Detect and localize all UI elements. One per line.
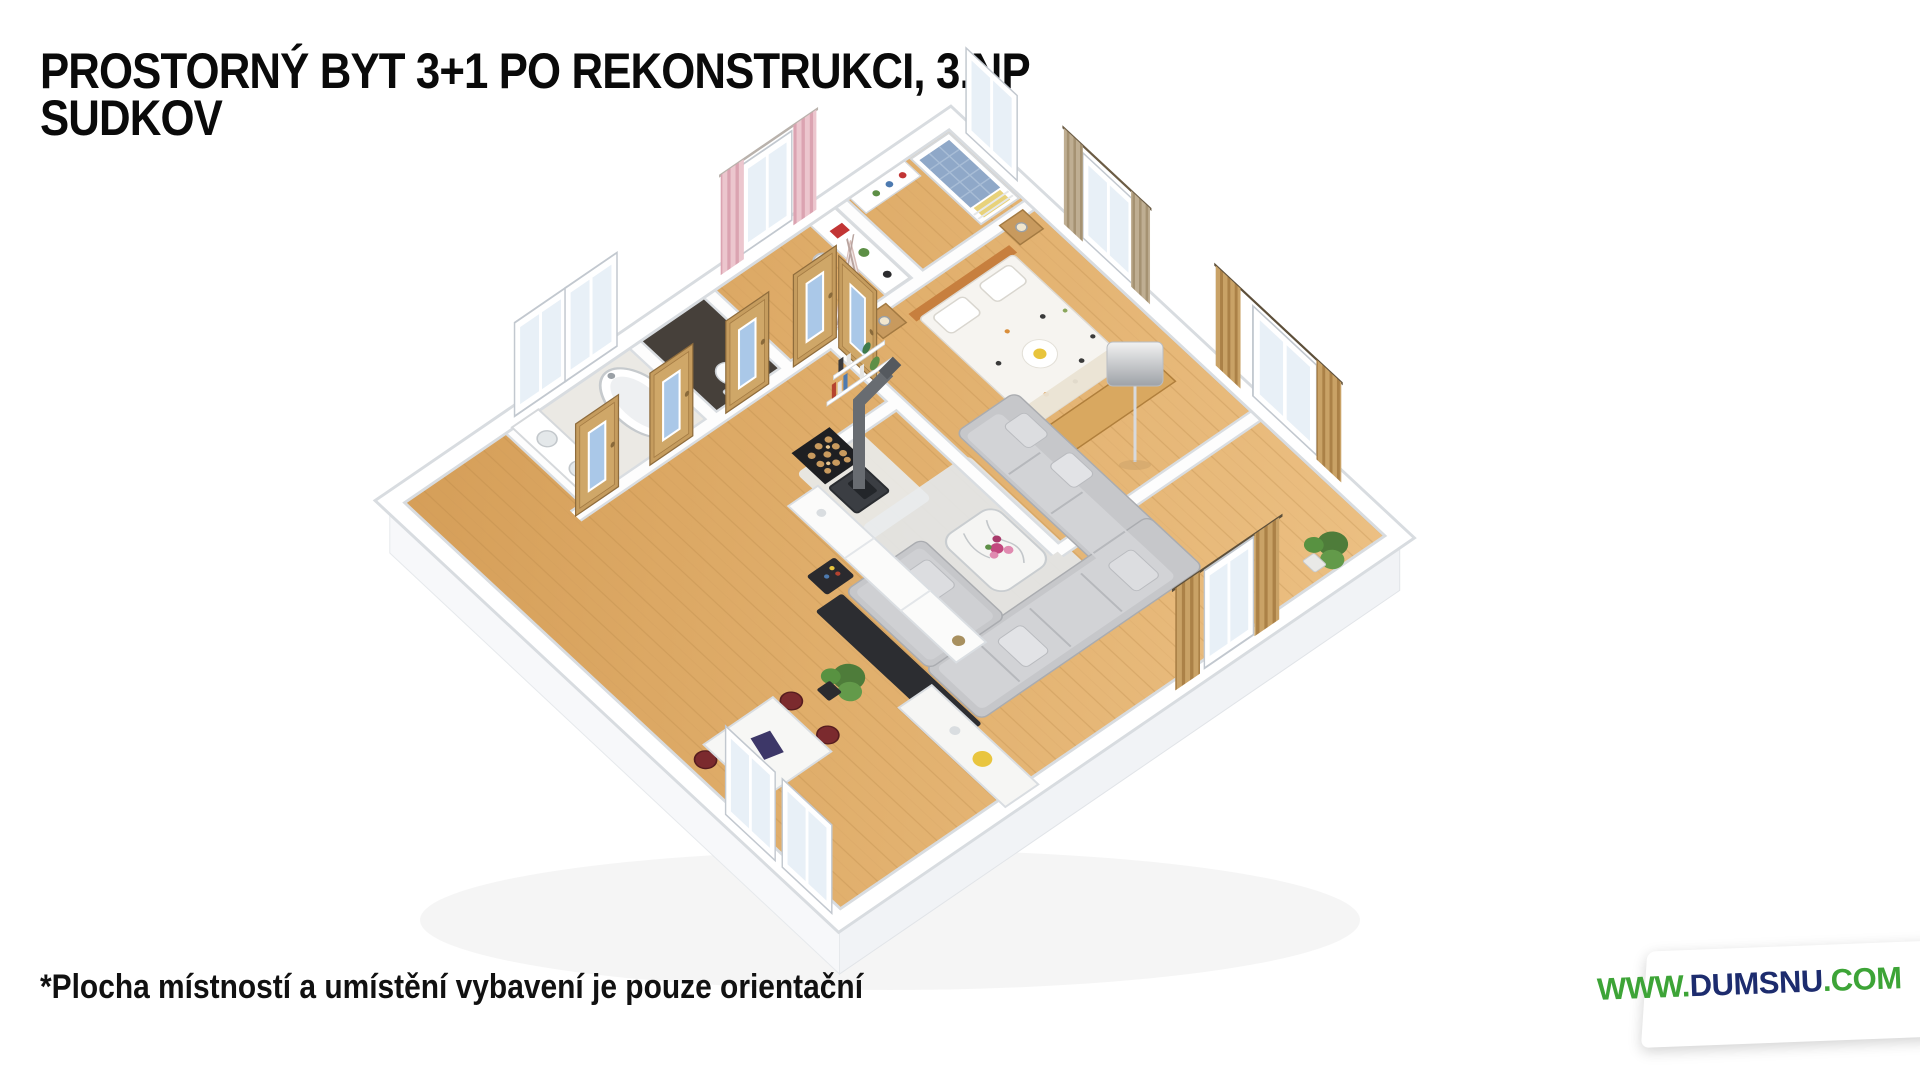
gold-curtain xyxy=(1254,517,1279,636)
page: { "title": { "line1": "PROSTORNÝ BYT 3+1… xyxy=(0,0,1920,1080)
pink-curtain xyxy=(793,110,816,226)
disclaimer-text: *Plocha místností a umístění vybavení je… xyxy=(40,968,863,1007)
pink-curtain xyxy=(721,159,744,275)
watermark-name: DUMSNU xyxy=(1689,963,1823,1003)
floorplan-stage xyxy=(0,0,1920,1080)
disclaimer-note: *Plocha místností a umístění vybavení je… xyxy=(40,968,975,1007)
floorplan-render xyxy=(0,0,1920,1080)
watermark-suffix: .COM xyxy=(1822,960,1902,998)
tan-curtain xyxy=(1131,191,1150,305)
watermark-prefix: WWW. xyxy=(1597,968,1691,1007)
tan-curtain xyxy=(1064,128,1083,242)
floorplan-flat xyxy=(390,118,1400,921)
gold-curtain xyxy=(1175,572,1200,691)
